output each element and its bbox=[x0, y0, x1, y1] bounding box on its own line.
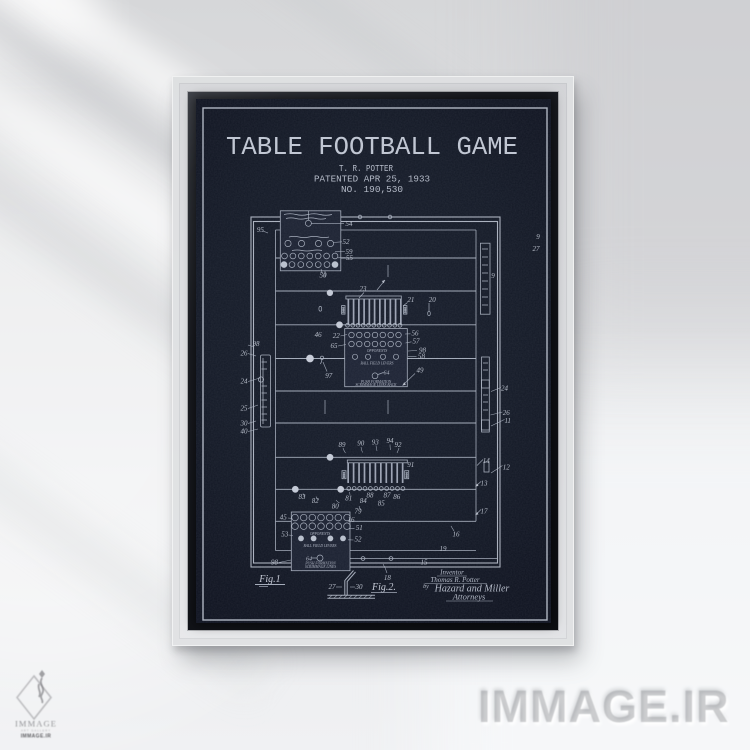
svg-text:IMMAGE.IR: IMMAGE.IR bbox=[21, 734, 52, 740]
svg-text:ART GALLERY: ART GALLERY bbox=[21, 729, 51, 733]
svg-text:IMMAGE: IMMAGE bbox=[15, 719, 57, 729]
